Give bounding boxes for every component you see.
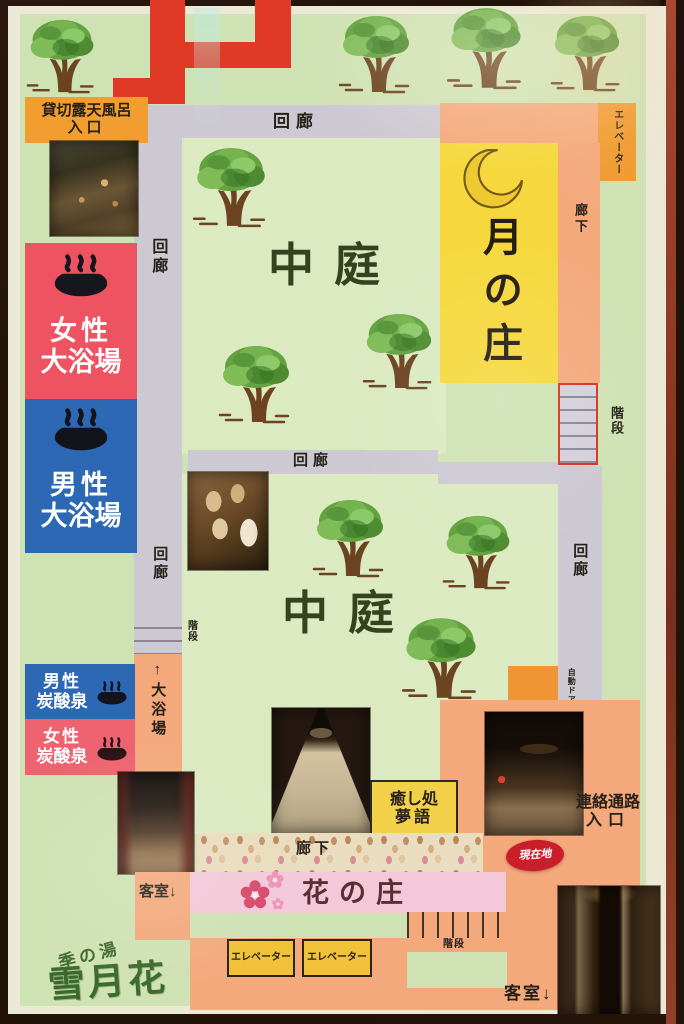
corridor-middle-east [438, 462, 560, 484]
red-path-segment [150, 42, 291, 68]
women-carbonated-line1: 女性 [43, 727, 81, 747]
tree-icon [216, 342, 296, 426]
men-large-bath-line2: 大浴場 [41, 501, 122, 532]
photo-carpet-hallway [272, 708, 370, 833]
corridor-moon-east [558, 143, 600, 383]
stairs-marks-bottom [407, 912, 510, 938]
blossom-icon [266, 871, 284, 889]
onsen-icon [50, 406, 112, 453]
corridor-label: 回廊 [293, 453, 333, 470]
connecting-passage-sign: 連絡通路 入口 [572, 788, 644, 836]
women-large-bath-block: 女性 大浴場 [25, 243, 137, 399]
elevator-label: エレベーター [307, 952, 367, 964]
frame-red-edge [666, 0, 676, 1024]
stairs-marks-left [134, 616, 182, 654]
logo-name: 雪月花 [47, 958, 170, 1009]
current-location-label: 現在地 [518, 848, 552, 863]
guest-rooms-block-west [135, 872, 190, 940]
corridor-middle: 回廊 [188, 450, 438, 474]
moon-wing-label: 月の庄 [476, 216, 522, 375]
corridor-top: 回廊 [148, 105, 444, 138]
corridor-label: 回廊 [148, 238, 166, 276]
green-patch [407, 952, 507, 988]
hallway-label: 廊下 [572, 203, 587, 235]
men-carbonated-block: 男性 炭酸泉 [25, 664, 135, 719]
photo-open-air-bath [50, 141, 138, 236]
corridor-moon-top [440, 103, 600, 143]
courtyard-lower-label: 中庭 [282, 588, 414, 641]
stairs-label: 階段 [185, 620, 197, 642]
connecting-passage-line1: 連絡通路 [576, 794, 640, 812]
blossom-icon [272, 898, 284, 910]
ryokan-floor-map: 回廊 回廊 回廊 階段 ↑大浴場 回廊 回廊 自動ドア エレベーター 廊下 月の… [0, 0, 684, 1024]
healing-line1: 癒し処 [390, 791, 438, 809]
moon-wing-name: 月の庄 [440, 206, 558, 384]
private-bath-entrance-sign: 貸切露天風呂 入口 [25, 97, 148, 143]
corridor-label: 回廊 [570, 543, 587, 579]
tree-icon [360, 310, 438, 392]
elevator-box: エレベーター [302, 939, 372, 977]
guest-rooms-label: 客室↓ [139, 884, 177, 901]
connecting-passage-line2: 入口 [586, 812, 630, 830]
photo-lobby [485, 712, 583, 835]
guest-rooms-label: 客室↓ [504, 984, 553, 1004]
men-large-bath-block: 男性 大浴場 [25, 399, 137, 553]
elevator-label: エレベーター [611, 109, 623, 175]
men-large-bath-line1: 男性 [50, 470, 112, 501]
stairs-label: 階段 [608, 406, 623, 436]
onsen-icon [50, 252, 112, 299]
women-carbonated-block: 女性 炭酸泉 [25, 719, 135, 775]
tree-icon [190, 144, 272, 230]
women-carbonated-line2: 炭酸泉 [37, 747, 88, 767]
courtyard-upper-label: 中庭 [268, 240, 400, 293]
auto-door-label: 自動ドア [567, 668, 576, 704]
tree-icon [310, 496, 390, 580]
photo-entrance-interior [558, 886, 660, 1014]
photo-guestroom-hallway [118, 772, 194, 874]
photo-ema-signs [188, 472, 268, 570]
hallway-band [197, 833, 483, 873]
tree-icon [548, 12, 626, 94]
corridor-label: 回廊 [273, 112, 319, 132]
healing-line2: 夢語 [395, 809, 433, 827]
elevator-label: エレベーター [231, 952, 291, 964]
to-large-bath-label: ↑大浴場 [148, 662, 165, 739]
women-large-bath-line2: 大浴場 [41, 347, 122, 378]
elevator-top-block: エレベーター [598, 103, 636, 181]
men-carbonated-line1: 男性 [43, 672, 81, 692]
hallway-label: 廊下 [296, 841, 332, 858]
flower-wing-label: 花の庄 [302, 878, 413, 909]
women-large-bath-line1: 女性 [50, 316, 112, 347]
private-bath-line2: 入口 [67, 120, 105, 137]
private-bath-line1: 貸切露天風呂 [41, 103, 131, 120]
healing-place-sign: 癒し処 夢語 [370, 780, 458, 838]
tree-icon [336, 12, 416, 96]
crescent-moon-icon [460, 149, 524, 213]
elevator-box: エレベーター [227, 939, 295, 977]
stairs-label: 階段 [443, 939, 465, 951]
corridor-label: 回廊 [150, 546, 167, 582]
tree-icon [24, 16, 100, 96]
tree-icon [444, 4, 528, 92]
men-carbonated-line2: 炭酸泉 [37, 692, 88, 712]
stairs-icon [558, 383, 598, 465]
onsen-icon [95, 736, 129, 762]
corridor-right [558, 466, 602, 712]
onsen-icon [95, 680, 129, 706]
tree-icon [440, 512, 516, 592]
